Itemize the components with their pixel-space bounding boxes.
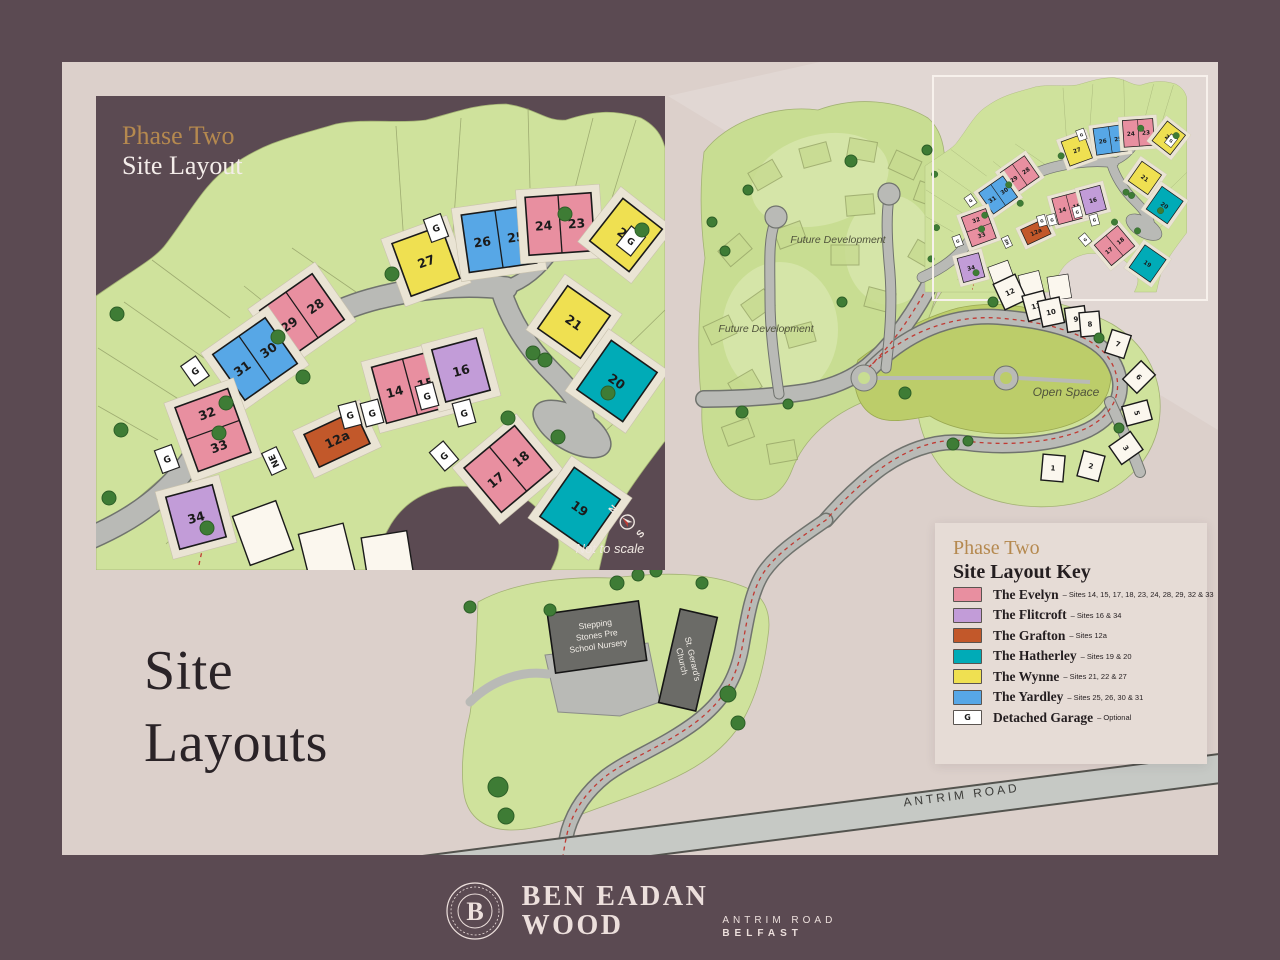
landscape-circle [1000, 372, 1012, 384]
tree-icon [783, 399, 793, 409]
footer-brand-band: B BEN EADAN WOOD ANTRIM ROAD BELFAST [0, 862, 1280, 960]
future-house-outline [845, 194, 875, 216]
tree-icon [731, 716, 745, 730]
future-house-outline [766, 440, 797, 465]
legend-house-type-sites: – Sites 16 & 34 [1071, 611, 1122, 620]
tree-icon [1114, 423, 1124, 433]
legend-row-garage: GDetached Garage– Optional [953, 708, 1207, 728]
future-house-outline [831, 245, 859, 265]
legend-house-type-name: The Wynne [993, 669, 1059, 685]
legend-swatch-grafton [953, 628, 982, 643]
tree-icon [720, 246, 730, 256]
tree-icon [963, 436, 973, 446]
tree-icon [899, 387, 911, 399]
future-development-label-2a: Future Development [718, 323, 814, 335]
inset-title-accent: Phase Two [122, 121, 235, 150]
site-plan-graphic: 27262524232221202928313032333412a1415161… [0, 0, 1280, 960]
page-title-line2: Layouts [144, 708, 328, 780]
phase1-site-10-house: 10 [1038, 297, 1065, 327]
legend-house-type-name: The Flitcroft [993, 607, 1067, 623]
brand-name: BEN EADAN WOOD [522, 882, 709, 941]
legend-row-flitcroft: The Flitcroft– Sites 16 & 34 [953, 606, 1207, 626]
legend-swatch-evelyn [953, 587, 982, 602]
legend-swatch-flitcroft [953, 608, 982, 623]
legend-house-type-sites: – Sites 12a [1069, 631, 1107, 640]
tree-icon [947, 438, 959, 450]
tree-icon [544, 604, 556, 616]
legend-row-evelyn: The Evelyn– Sites 14, 15, 17, 18, 23, 24… [953, 585, 1207, 605]
legend-swatch-garage: G [953, 710, 982, 725]
phase1-site-number: 1 [1050, 464, 1056, 472]
roundabout [858, 372, 870, 384]
tree-icon [837, 297, 847, 307]
tree-icon [707, 217, 717, 227]
legend-swatch-wynne [953, 669, 982, 684]
tree-icon [743, 185, 753, 195]
tree-icon [845, 155, 857, 167]
brand-address-road: ANTRIM ROAD [722, 915, 836, 926]
legend-swatch-hatherley [953, 649, 982, 664]
brand-address: ANTRIM ROAD BELFAST [722, 915, 836, 939]
legend-house-type-name: The Grafton [993, 628, 1065, 644]
not-to-scale-note: Not to scale [576, 541, 645, 556]
tree-icon [696, 577, 708, 589]
tree-icon [464, 601, 476, 613]
legend-house-type-sites: – Optional [1097, 713, 1131, 722]
legend-row-wynne: The Wynne– Sites 21, 22 & 27 [953, 667, 1207, 687]
open-space-label: Open Space [1033, 385, 1100, 399]
legend-house-type-name: Detached Garage [993, 710, 1093, 726]
legend-title-accent: Phase Two [953, 537, 1207, 560]
brochure-page: 27262524232221202928313032333412a1415161… [0, 0, 1280, 960]
legend-house-type-name: The Hatherley [993, 648, 1077, 664]
brand-address-city: BELFAST [722, 928, 836, 939]
phase1-site-1-house: 1 [1041, 454, 1065, 482]
tree-icon [1094, 333, 1104, 343]
legend-house-type-name: The Evelyn [993, 587, 1059, 603]
page-title-line1: Site [144, 636, 328, 708]
tree-icon [922, 145, 932, 155]
site-layout-key: Phase Two Site Layout Key The Evelyn– Si… [935, 523, 1207, 764]
legend-title-main: Site Layout Key [953, 561, 1207, 584]
tree-icon [720, 686, 736, 702]
inset-title-main: Site Layout [122, 151, 243, 180]
legend-house-type-sites: – Sites 19 & 20 [1081, 652, 1132, 661]
legend-house-type-name: The Yardley [993, 689, 1063, 705]
brand-line1: BEN EADAN [522, 882, 709, 911]
brand-badge-icon: B [444, 880, 506, 942]
phase1-site-number: 8 [1087, 320, 1093, 328]
nursery-building: Stepping Stones Pre School Nursery [547, 601, 646, 673]
legend-house-type-sites: – Sites 25, 26, 30 & 31 [1067, 693, 1143, 702]
tree-icon [632, 569, 644, 581]
badge-letter: B [466, 897, 483, 926]
legend-garage-letter: G [964, 713, 971, 722]
future-development-label-1a: Future Development [790, 234, 886, 246]
tree-icon [488, 777, 508, 797]
tree-icon [736, 406, 748, 418]
legend-swatch-yardley [953, 690, 982, 705]
page-title: Site Layouts [144, 636, 328, 779]
tree-icon [610, 576, 624, 590]
tree-icon [498, 808, 514, 824]
tree-icon [988, 297, 998, 307]
legend-row-hatherley: The Hatherley– Sites 19 & 20 [953, 647, 1207, 667]
brand-line2: WOOD [522, 911, 709, 940]
legend-house-type-sites: – Sites 14, 15, 17, 18, 23, 24, 28, 29, … [1063, 590, 1214, 599]
phase-two-panel: Phase Two Site Layout N S Not to scale [90, 96, 674, 589]
legend-house-type-sites: – Sites 21, 22 & 27 [1063, 672, 1126, 681]
legend-row-yardley: The Yardley– Sites 25, 26, 30 & 31 [953, 688, 1207, 708]
legend-row-grafton: The Grafton– Sites 12a [953, 626, 1207, 646]
